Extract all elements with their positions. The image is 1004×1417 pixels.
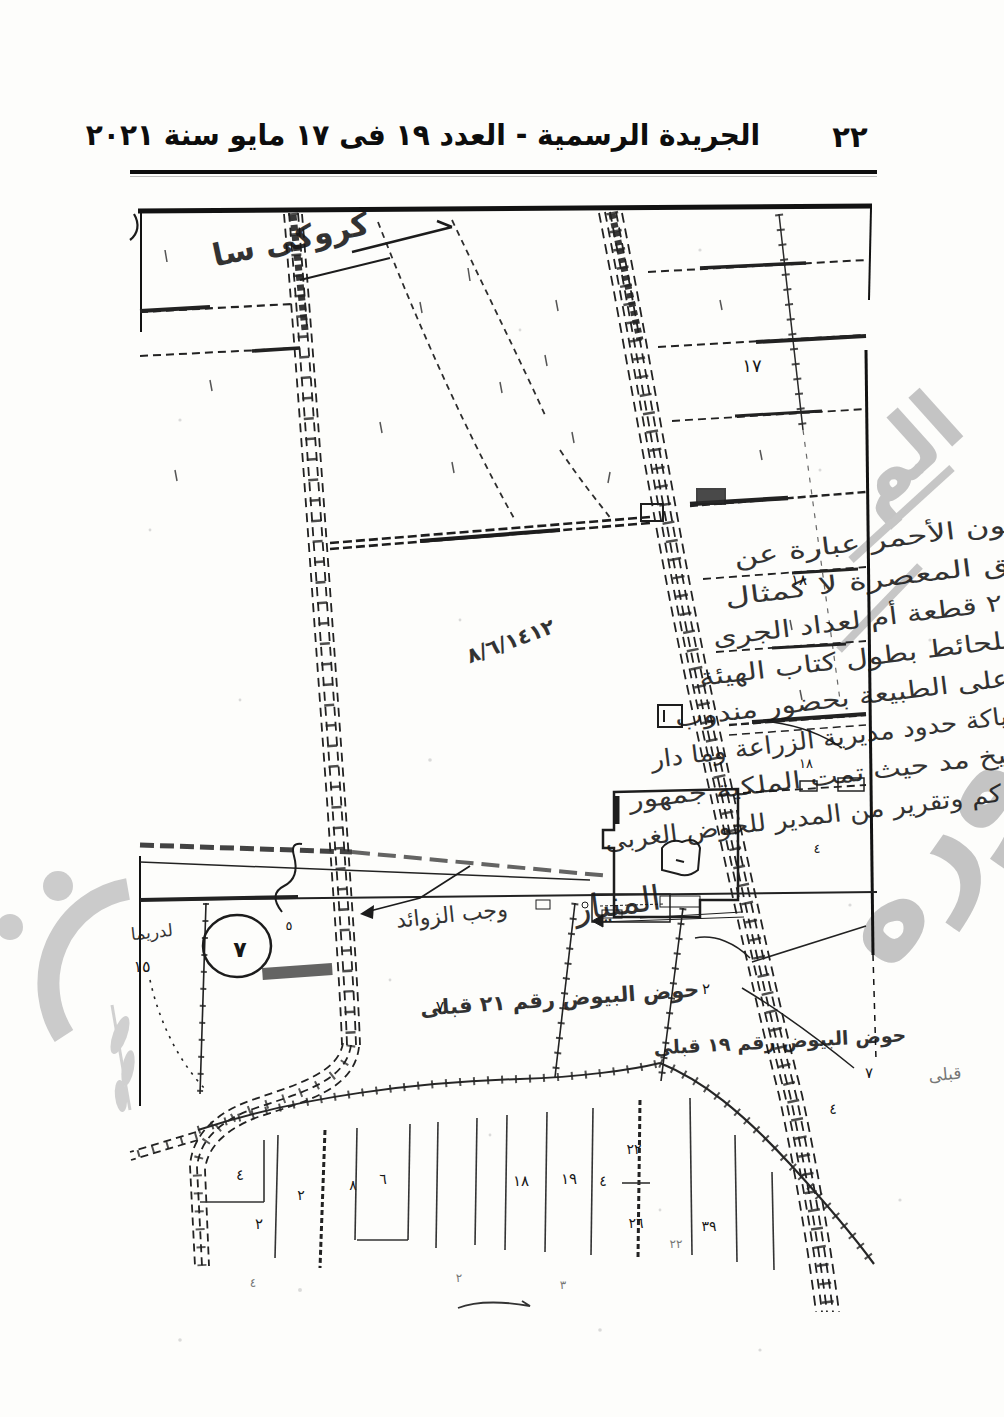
parcel-number: ٤: [250, 1276, 256, 1290]
farm-road: [330, 504, 663, 549]
circled-parcel-marker: [130, 214, 470, 980]
parcel-number: ٢: [456, 1271, 462, 1285]
corner-note: قبلى: [927, 1063, 962, 1086]
hod-label-center: حوض البيوض رقم ٢١ قبلى: [420, 977, 701, 1020]
parcel-number: ٤: [599, 1173, 607, 1189]
survey-ticks: [165, 250, 802, 700]
margin-note: لدريما: [130, 920, 174, 944]
bottom-parcel-lines: [200, 1098, 774, 1308]
parcel-number: ١٨: [791, 571, 807, 589]
parcel-number: ٥: [286, 918, 293, 933]
circled-number: ٧: [233, 937, 247, 962]
parcel-number: ٧: [436, 997, 445, 1016]
parcel-number: ١٩: [561, 1170, 577, 1188]
parcel-number: ٣٩: [701, 1218, 716, 1234]
side-note-label: وجب الزوائد: [395, 896, 509, 933]
west-road-band: [130, 213, 360, 1266]
cadastral-map: الم صوره: [0, 0, 1004, 1417]
central-field-lines: [378, 220, 612, 520]
parcel-number: ٤: [829, 1101, 837, 1117]
parcel-number: ٢: [255, 1215, 263, 1233]
parcel-number: ١٨: [799, 756, 813, 771]
parcel-number: ٨: [349, 1177, 357, 1193]
parcel-number: ٢٢: [670, 1237, 683, 1251]
parcel-number: ٢: [702, 980, 710, 998]
west-parcel-lines: [140, 304, 300, 356]
press-logo-watermark: [0, 871, 137, 1113]
parcel-number: ٢٦: [628, 1215, 643, 1231]
parcel-number: ٢: [297, 1187, 305, 1203]
date-note: ٨/٦/١٤١٢: [463, 614, 558, 668]
parcel-number: ٧: [865, 1064, 873, 1082]
parcel-number: ١٧: [742, 355, 762, 376]
parcel-number: ٢٢: [626, 1141, 641, 1157]
parcel-number: ٣: [560, 1278, 567, 1292]
parcel-number: ٦: [379, 1171, 387, 1187]
parcel-number: ٤: [236, 1166, 244, 1184]
parcel-number: ٤: [814, 841, 821, 856]
parcel-number: ١٨: [513, 1172, 529, 1190]
margin-number: ١٥: [133, 957, 150, 976]
